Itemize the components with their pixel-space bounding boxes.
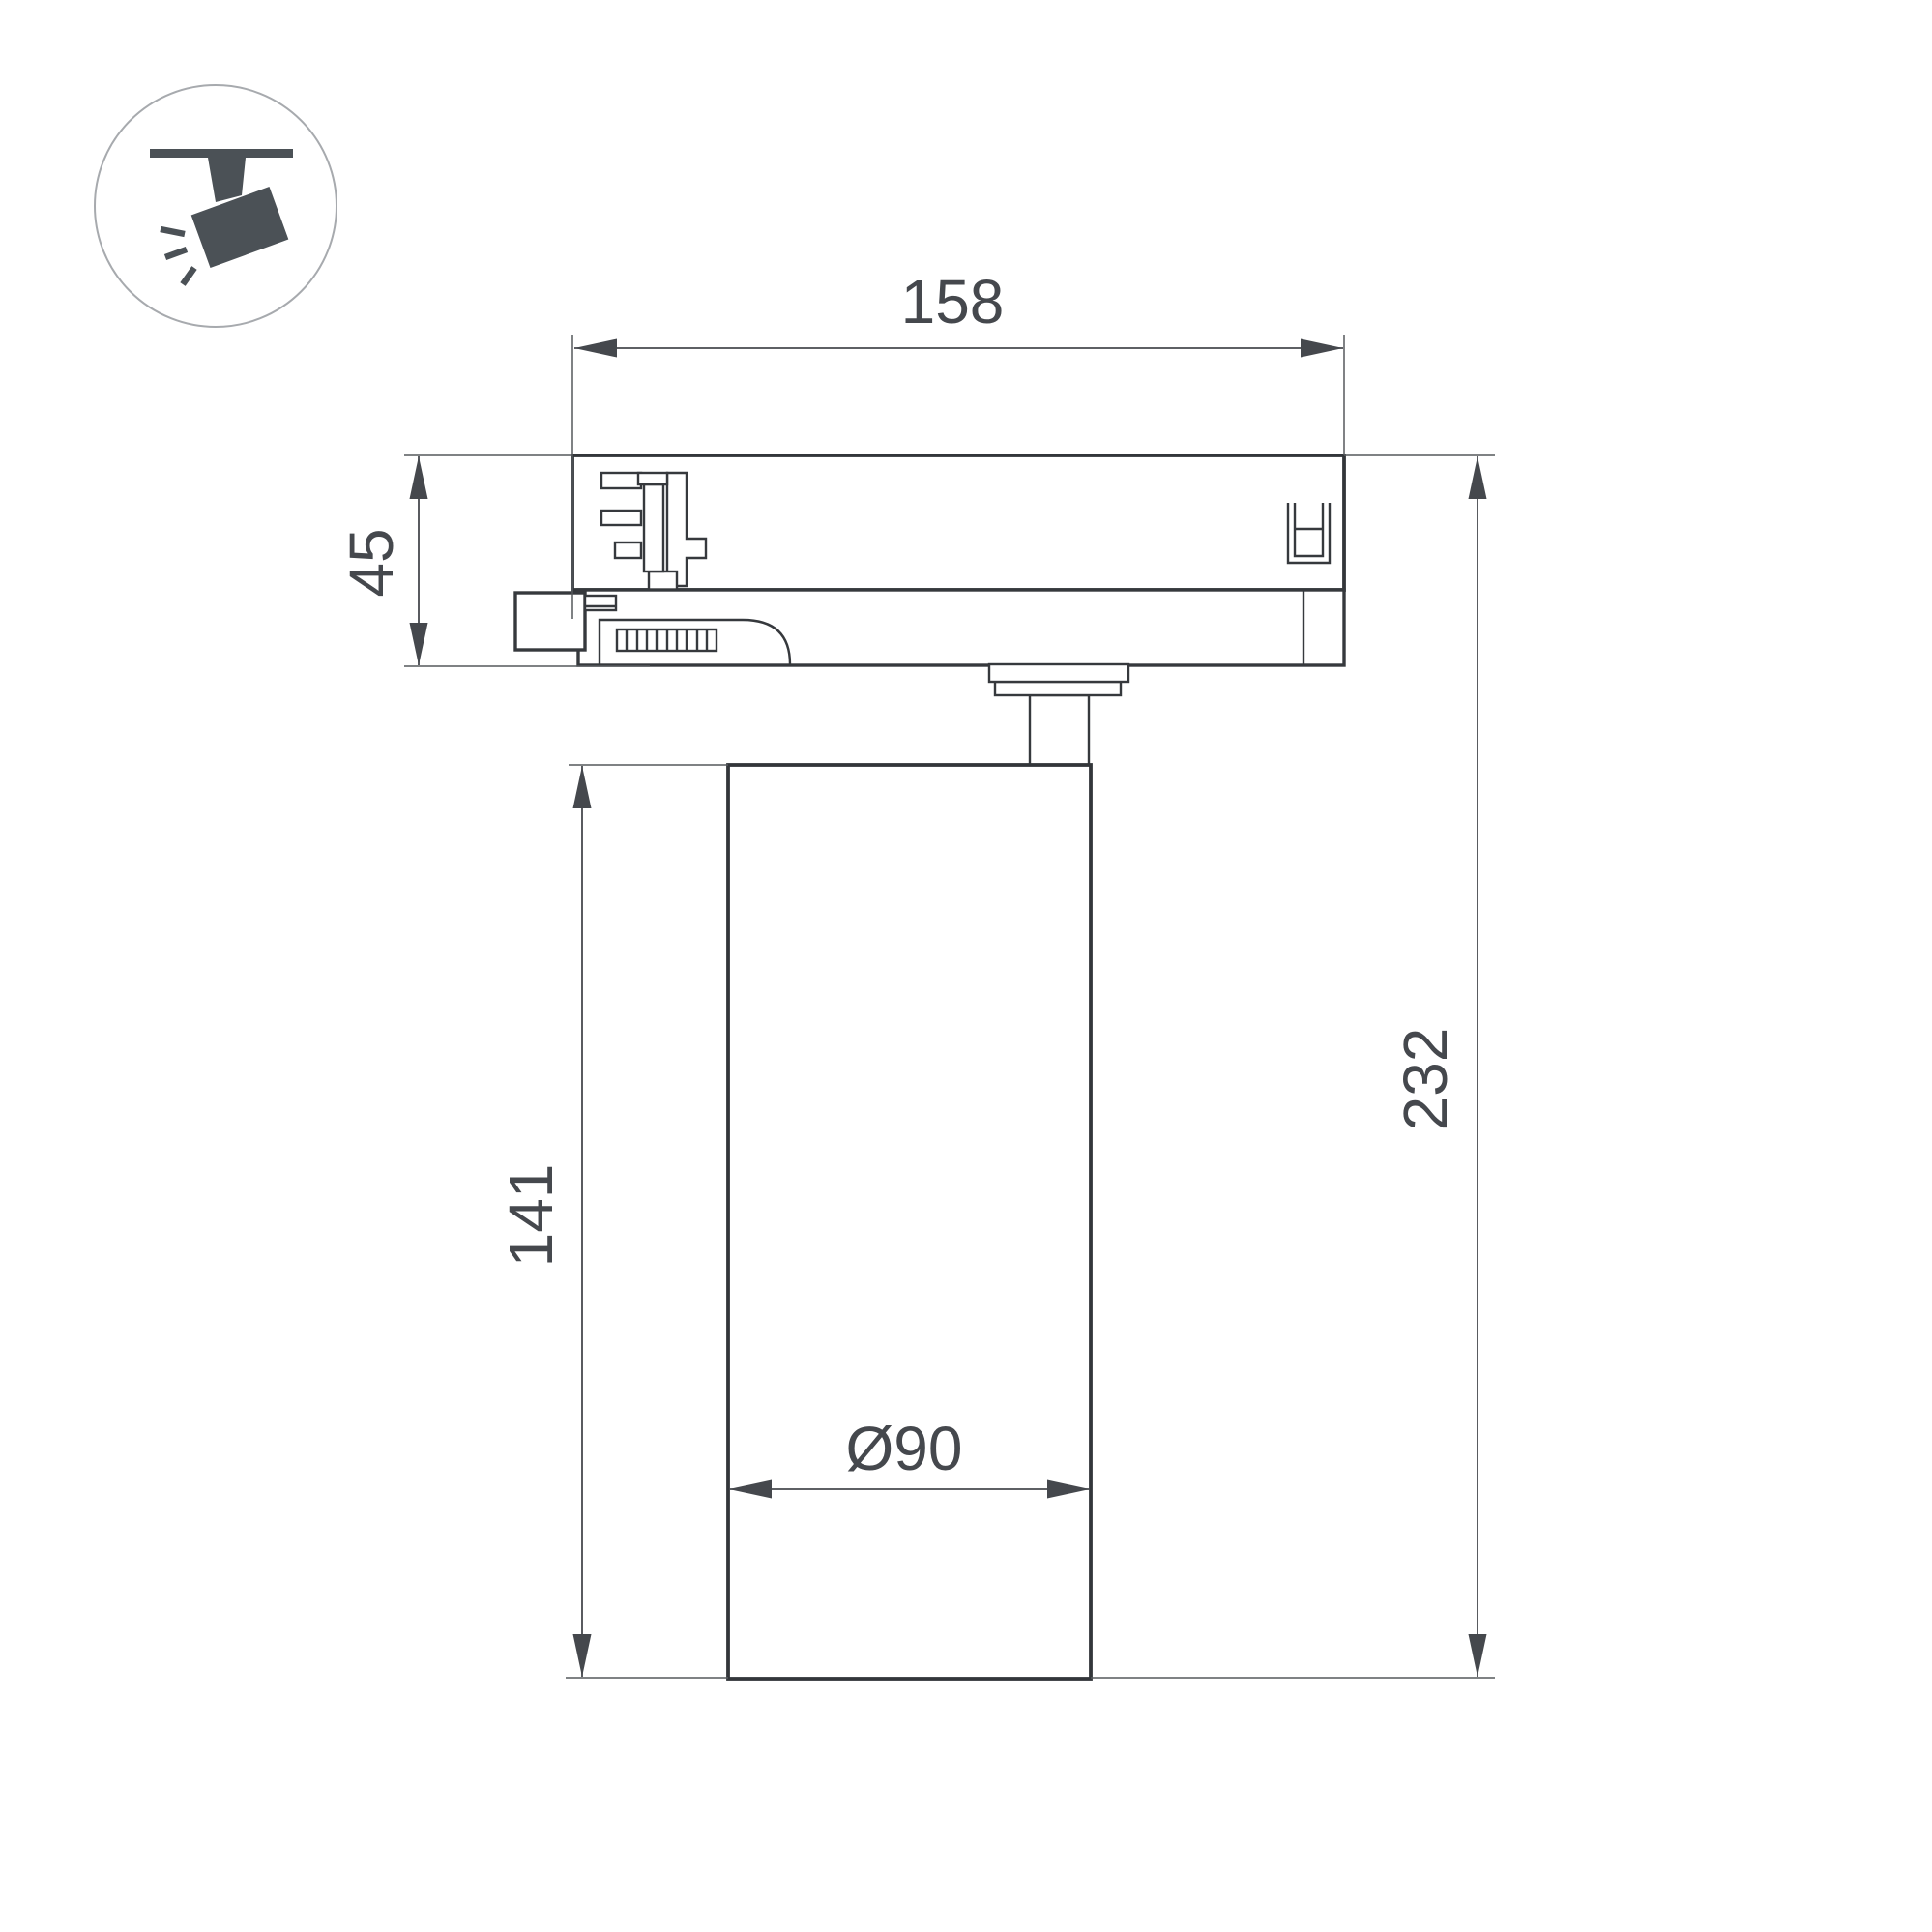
technical-drawing: 158 45 141 232 Ø90 <box>0 0 1932 1932</box>
icon-circle <box>95 85 337 327</box>
ribbed-grip <box>617 629 717 651</box>
stem <box>1030 695 1089 766</box>
dim-45-label: 45 <box>337 528 406 597</box>
latch-block <box>515 593 585 650</box>
dim-141: 141 <box>496 765 728 1678</box>
track-adapter <box>515 455 1344 766</box>
dim-141-label: 141 <box>496 1164 566 1268</box>
lamp-body <box>728 765 1091 1679</box>
contact-prong <box>601 473 641 488</box>
track-bar <box>150 149 293 158</box>
latch-tab <box>585 596 616 610</box>
adapter-upper-box <box>572 455 1344 590</box>
flange-lower <box>995 682 1121 695</box>
contact-pin-cap <box>638 473 667 484</box>
dim-diameter-label: Ø90 <box>846 1414 963 1483</box>
dim-232-label: 232 <box>1390 1028 1460 1131</box>
track-spotlight-icon <box>95 85 337 327</box>
drawing-canvas: 158 45 141 232 Ø90 <box>0 0 1932 1932</box>
contact-prong <box>615 542 641 558</box>
gear-housing-body <box>578 590 1344 665</box>
contact-foot <box>649 571 677 590</box>
gear-housing <box>515 590 1344 665</box>
contact-prong <box>601 511 641 525</box>
dim-158-label: 158 <box>901 267 1005 337</box>
mount-stem <box>989 664 1128 766</box>
contact-pin <box>644 484 663 571</box>
flange-upper <box>989 664 1128 682</box>
